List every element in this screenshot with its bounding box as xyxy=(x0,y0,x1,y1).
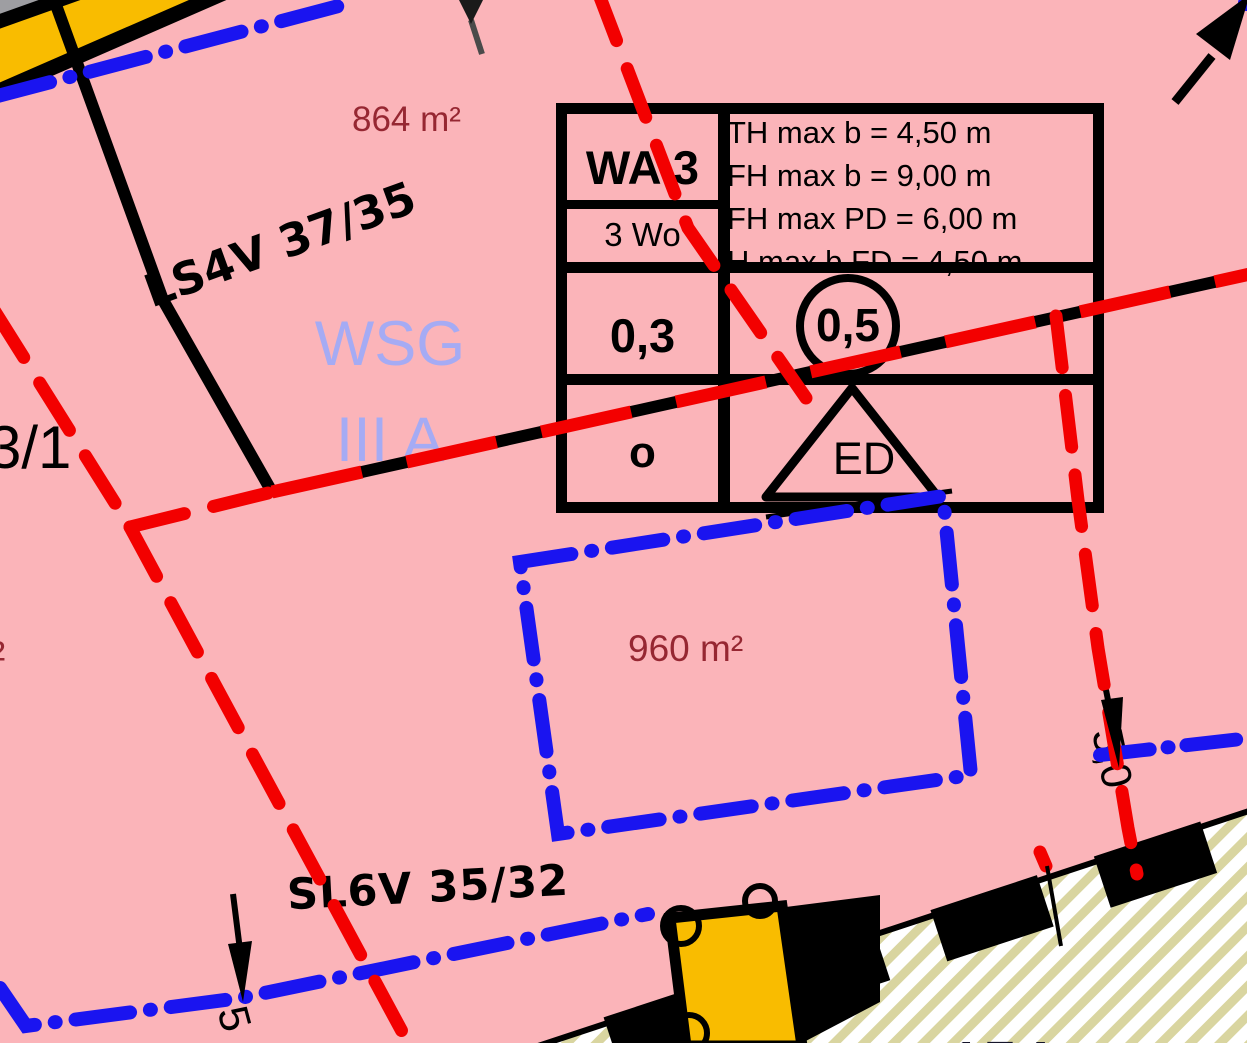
street-edge-line xyxy=(538,810,1247,1043)
top-left-road-band xyxy=(0,0,226,94)
northeast-arrow-shaft xyxy=(1175,56,1212,102)
red-line-left-lower xyxy=(130,527,412,1043)
height-rule-1: TH max b = 4,50 m xyxy=(727,111,1091,154)
zoning-plan-map-canvas[interactable]: 864 m² LS4V 37/35 WSG III A 3/1 ² 960 m²… xyxy=(0,0,1247,1043)
corner-circle-3 xyxy=(671,1015,707,1043)
pipeline-label-bottom: SL6V 35/32 xyxy=(286,856,570,921)
street-area-bottom-right xyxy=(538,810,1247,1043)
red-dash-at-wall xyxy=(1040,852,1046,866)
roof-form-label: ED xyxy=(808,433,920,485)
dwellings-label: 3 Wo xyxy=(567,216,718,254)
existing-building-black xyxy=(778,895,880,1043)
corner-circle-1 xyxy=(663,908,699,944)
table-row-line-2 xyxy=(567,374,1093,385)
top-arrow-head xyxy=(457,0,485,24)
dimension-label-bottom-left: 5 xyxy=(207,1001,261,1037)
wsg-line1: WSG xyxy=(268,296,512,392)
parcel-number-left: 3/1 xyxy=(0,413,71,482)
height-rule-3: FH max PD = 6,00 m xyxy=(727,197,1091,240)
hatched-area xyxy=(538,812,1247,1043)
planned-building-yellow xyxy=(670,906,802,1043)
top-arrow-shaft xyxy=(471,20,482,54)
grz-value: 0,3 xyxy=(567,308,718,363)
dim-arrow-bottom-left-shaft xyxy=(233,894,240,950)
red-line-left-branch xyxy=(130,493,268,527)
blue-line-top-left xyxy=(0,3,350,97)
area-fragment-left: ² xyxy=(0,630,5,684)
water-protection-zone-label: WSG III A xyxy=(268,296,512,488)
building-type-value: o xyxy=(567,428,718,478)
blue-corner-dot xyxy=(1238,0,1247,11)
dimension-label-right: 5,0 xyxy=(1081,724,1141,793)
dim-arrow-bottom-left-head xyxy=(228,941,252,1002)
dim-arrow-right-shaft xyxy=(1106,690,1111,715)
thin-arrow-into-street xyxy=(1047,866,1061,946)
blue-plot-outline-960 xyxy=(520,496,971,834)
height-rule-4: H max b FD = 4,50 m xyxy=(727,240,1091,283)
zone-label: WA 3 xyxy=(567,140,718,195)
gfz-circle: 0,5 xyxy=(796,274,900,378)
wsg-line2: III A xyxy=(268,392,512,488)
corner-circle-2 xyxy=(745,886,775,916)
area-label-960: 960 m² xyxy=(628,628,743,670)
height-rules-block: TH max b = 4,50 m FH max b = 9,00 m FH m… xyxy=(727,111,1091,283)
parcel-number-bottom: 174 xyxy=(950,1030,1055,1043)
table-line-under-zone xyxy=(567,200,730,209)
area-label-864: 864 m² xyxy=(352,100,461,140)
northeast-arrow-head xyxy=(1196,0,1247,60)
blue-line-bottom-left xyxy=(0,914,648,1026)
gfz-value: 0,5 xyxy=(804,282,892,368)
wall-dashes xyxy=(612,833,1247,1043)
height-rule-2: FH max b = 9,00 m xyxy=(727,154,1091,197)
